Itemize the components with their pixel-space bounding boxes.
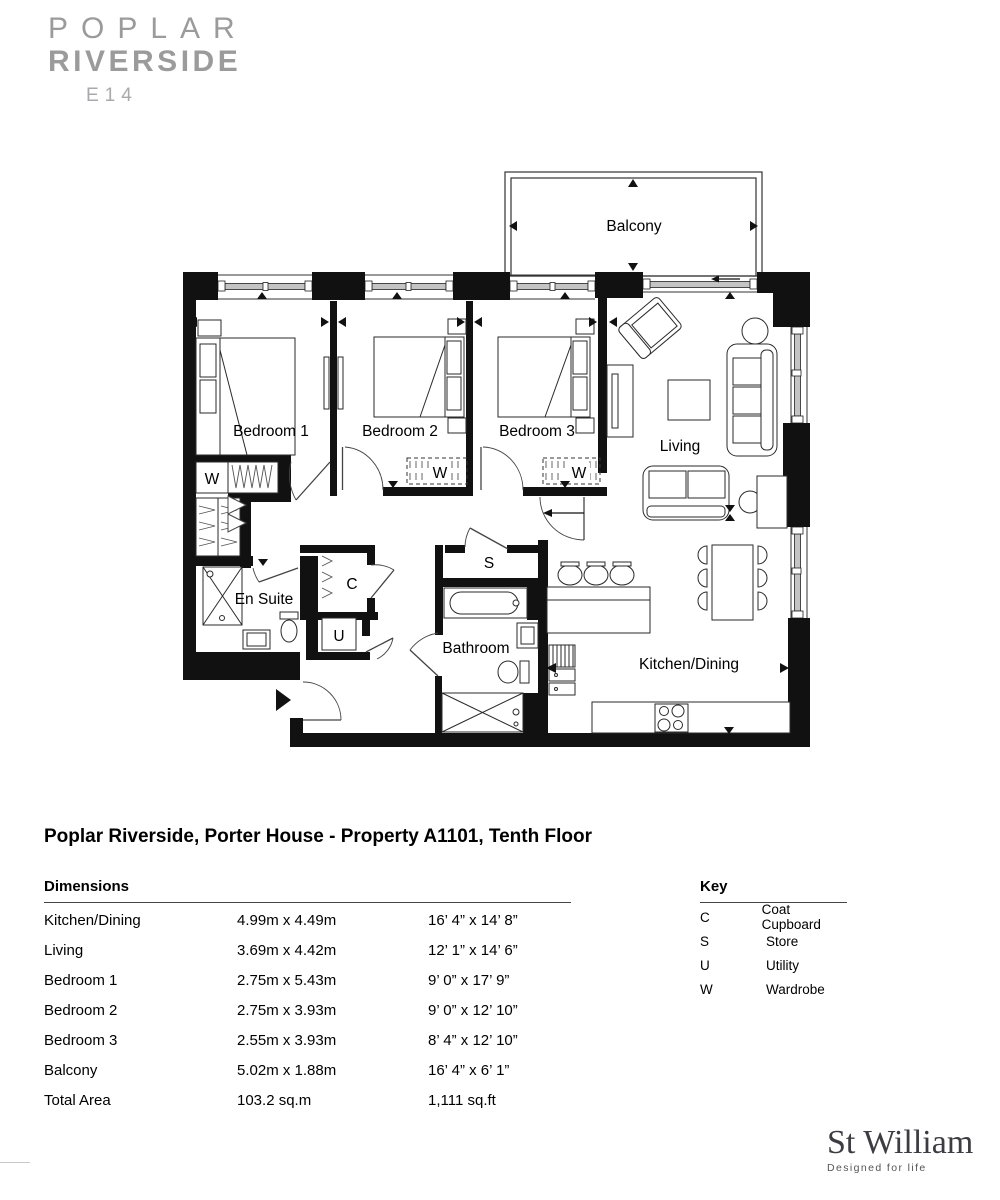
table-row: Balcony 5.02m x 1.88m 16’ 4” x 6’ 1”	[44, 1055, 571, 1085]
room-label-en-suite: En Suite	[235, 591, 294, 608]
dimensions-section: Dimensions Kitchen/Dining 4.99m x 4.49m …	[44, 878, 571, 1115]
dim-imperial: 9’ 0” x 17’ 9”	[428, 972, 571, 989]
key-label: Utility	[766, 958, 799, 973]
dim-imperial: 16’ 4” x 6’ 1”	[428, 1062, 571, 1079]
table-row: Bedroom 1 2.75m x 5.43m 9’ 0” x 17’ 9”	[44, 965, 571, 995]
dim-metric: 4.99m x 4.49m	[237, 912, 428, 929]
developer-logo: St William Designed for life	[827, 1126, 973, 1174]
list-item: U Utility	[700, 953, 847, 977]
dim-room: Total Area	[44, 1092, 237, 1109]
dim-room: Balcony	[44, 1062, 237, 1079]
key-label: Store	[766, 934, 798, 949]
dim-imperial: 8’ 4” x 12’ 10”	[428, 1032, 571, 1049]
key-rows: C Coat Cupboard S Store U Utility W Ward…	[700, 905, 847, 1001]
key-heading: Key	[700, 878, 847, 903]
key-section: Key C Coat Cupboard S Store U Utility W …	[700, 878, 847, 1001]
dim-room: Bedroom 1	[44, 972, 237, 989]
dim-imperial: 1,111 sq.ft	[428, 1092, 571, 1109]
list-item: W Wardrobe	[700, 977, 847, 1001]
room-label-bedroom-3: Bedroom 3	[499, 423, 575, 440]
key-code: W	[700, 982, 766, 997]
room-label-wardrobe-1: W	[205, 471, 220, 488]
key-code: C	[700, 910, 762, 925]
dim-room: Bedroom 3	[44, 1032, 237, 1049]
room-label-bathroom: Bathroom	[442, 640, 509, 657]
logo-poplar: POPLAR	[48, 14, 248, 44]
room-label-utility: U	[333, 628, 344, 645]
logo-riverside: RIVERSIDE	[48, 47, 248, 77]
key-code: U	[700, 958, 766, 973]
key-code: S	[700, 934, 766, 949]
floor-plan: Balcony Bedroom 1 Bedroom 2 Bedroom 3 Li…	[0, 150, 1000, 770]
table-row: Bedroom 2 2.75m x 3.93m 9’ 0” x 12’ 10”	[44, 995, 571, 1025]
dim-room: Living	[44, 942, 237, 959]
table-row: Bedroom 3 2.55m x 3.93m 8’ 4” x 12’ 10”	[44, 1025, 571, 1055]
dim-metric: 2.75m x 5.43m	[237, 972, 428, 989]
room-label-store: S	[484, 555, 494, 572]
dim-imperial: 16’ 4” x 14’ 8”	[428, 912, 571, 929]
list-item: C Coat Cupboard	[700, 905, 847, 929]
room-label-living: Living	[660, 438, 701, 455]
dim-metric: 2.55m x 3.93m	[237, 1032, 428, 1049]
dimensions-rows: Kitchen/Dining 4.99m x 4.49m 16’ 4” x 14…	[44, 905, 571, 1115]
developer-name: St William	[827, 1126, 973, 1160]
developer-tagline: Designed for life	[827, 1163, 973, 1174]
key-label: Coat Cupboard	[762, 902, 847, 932]
key-label: Wardrobe	[766, 982, 825, 997]
logo-postcode: E14	[86, 86, 248, 105]
dimensions-heading: Dimensions	[44, 878, 571, 903]
table-row: Kitchen/Dining 4.99m x 4.49m 16’ 4” x 14…	[44, 905, 571, 935]
dim-metric: 103.2 sq.m	[237, 1092, 428, 1109]
room-label-bedroom-1: Bedroom 1	[233, 423, 309, 440]
table-row: Living 3.69m x 4.42m 12’ 1” x 14’ 6”	[44, 935, 571, 965]
dim-room: Bedroom 2	[44, 1002, 237, 1019]
page-title: Poplar Riverside, Porter House - Propert…	[44, 826, 592, 848]
room-label-balcony: Balcony	[606, 218, 661, 235]
room-label-coat-cupboard: C	[346, 576, 357, 593]
room-label-bedroom-2: Bedroom 2	[362, 423, 438, 440]
room-label-kitchen-dining: Kitchen/Dining	[639, 656, 739, 673]
dim-imperial: 9’ 0” x 12’ 10”	[428, 1002, 571, 1019]
dim-metric: 3.69m x 4.42m	[237, 942, 428, 959]
table-row: Total Area 103.2 sq.m 1,111 sq.ft	[44, 1085, 571, 1115]
dim-imperial: 12’ 1” x 14’ 6”	[428, 942, 571, 959]
room-label-wardrobe-2: W	[433, 465, 448, 482]
development-logo: POPLAR RIVERSIDE E14	[48, 14, 248, 105]
list-item: S Store	[700, 929, 847, 953]
dim-metric: 5.02m x 1.88m	[237, 1062, 428, 1079]
dim-room: Kitchen/Dining	[44, 912, 237, 929]
page-corner-mark	[0, 1162, 30, 1163]
room-label-wardrobe-3: W	[572, 465, 587, 482]
dim-metric: 2.75m x 3.93m	[237, 1002, 428, 1019]
